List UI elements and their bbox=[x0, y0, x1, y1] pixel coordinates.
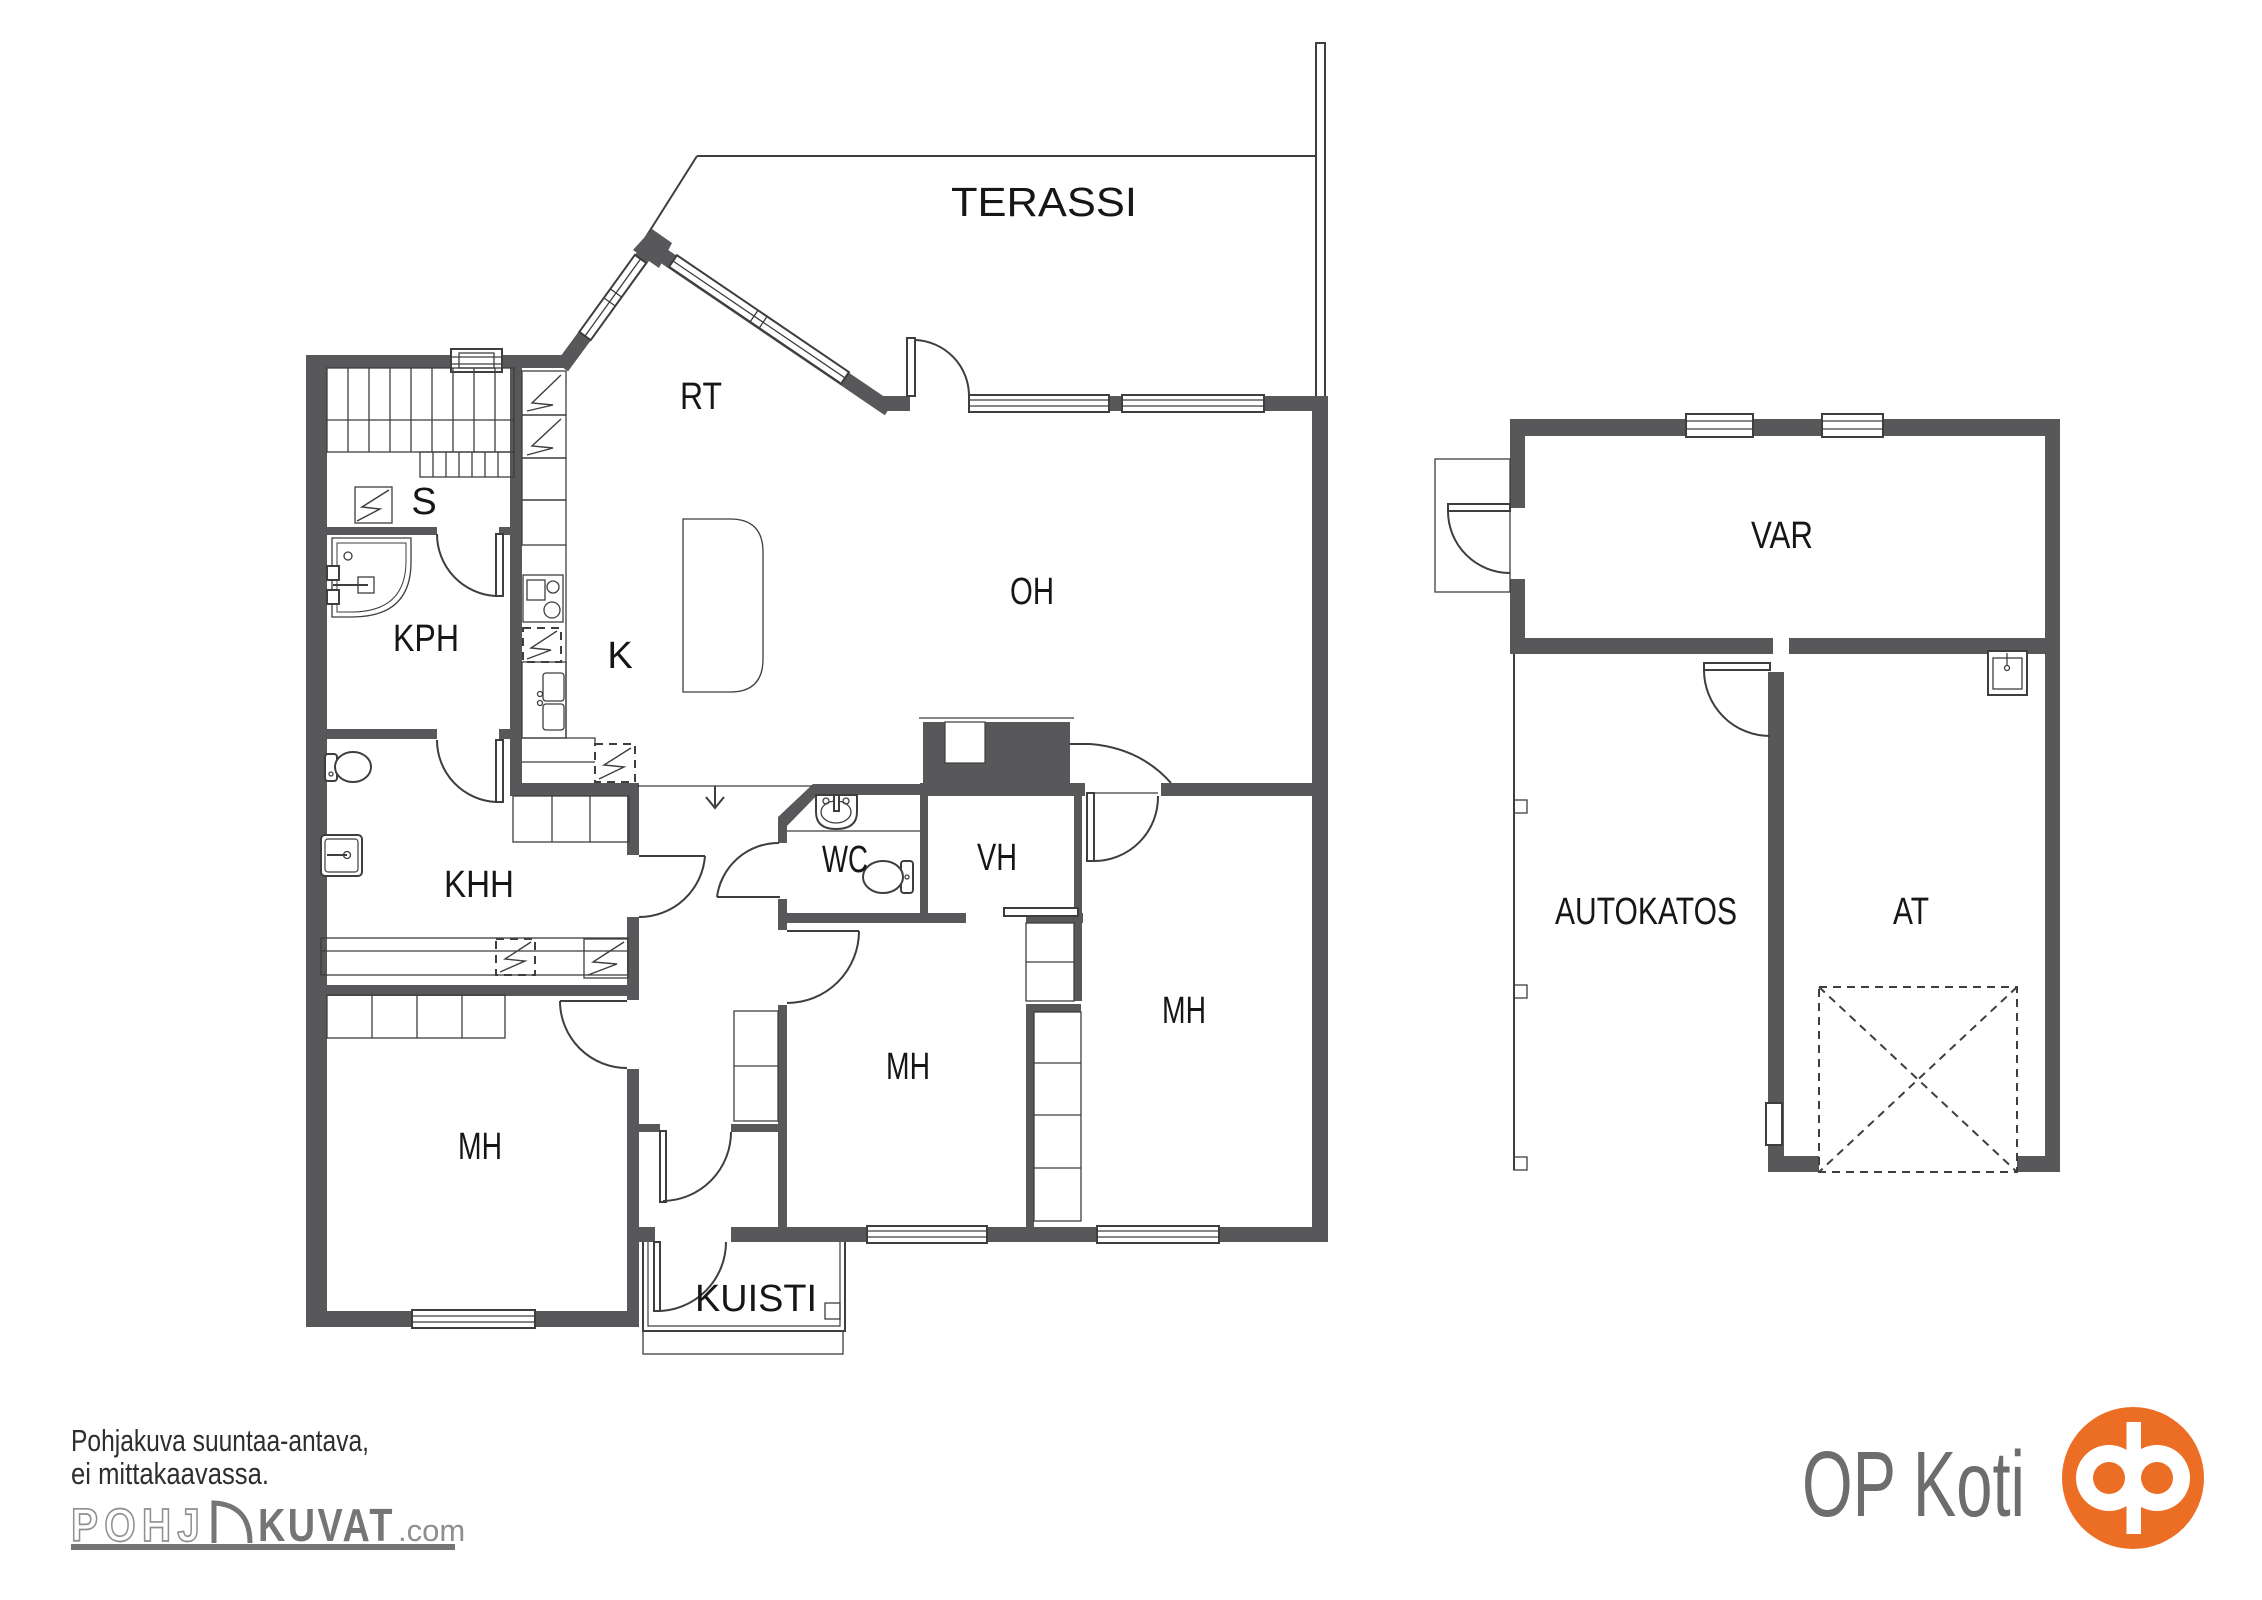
svg-text:RT: RT bbox=[680, 376, 722, 418]
svg-text:POHJ: POHJ bbox=[71, 1499, 206, 1551]
svg-text:WC: WC bbox=[822, 839, 868, 881]
svg-text:OH: OH bbox=[1010, 571, 1054, 613]
svg-text:MH: MH bbox=[1162, 990, 1206, 1032]
svg-text:AT: AT bbox=[1893, 891, 1929, 933]
svg-text:ei mittakaavassa.: ei mittakaavassa. bbox=[71, 1456, 269, 1491]
svg-text:.com: .com bbox=[398, 1513, 465, 1548]
svg-text:KHH: KHH bbox=[444, 864, 514, 906]
svg-text:OP Koti: OP Koti bbox=[1802, 1432, 2025, 1536]
svg-text:K: K bbox=[607, 635, 632, 677]
svg-text:TERASSI: TERASSI bbox=[951, 179, 1137, 225]
svg-text:Pohjakuva suuntaa-antava,: Pohjakuva suuntaa-antava, bbox=[71, 1423, 369, 1458]
svg-text:AUTOKATOS: AUTOKATOS bbox=[1555, 891, 1737, 933]
svg-text:VH: VH bbox=[977, 837, 1017, 879]
svg-text:KUVAT: KUVAT bbox=[258, 1499, 395, 1551]
svg-text:VAR: VAR bbox=[1751, 515, 1813, 557]
svg-text:MH: MH bbox=[886, 1046, 930, 1088]
svg-text:KUISTI: KUISTI bbox=[695, 1278, 817, 1320]
svg-text:S: S bbox=[411, 481, 436, 523]
svg-text:KPH: KPH bbox=[393, 618, 459, 660]
svg-text:MH: MH bbox=[458, 1126, 502, 1168]
